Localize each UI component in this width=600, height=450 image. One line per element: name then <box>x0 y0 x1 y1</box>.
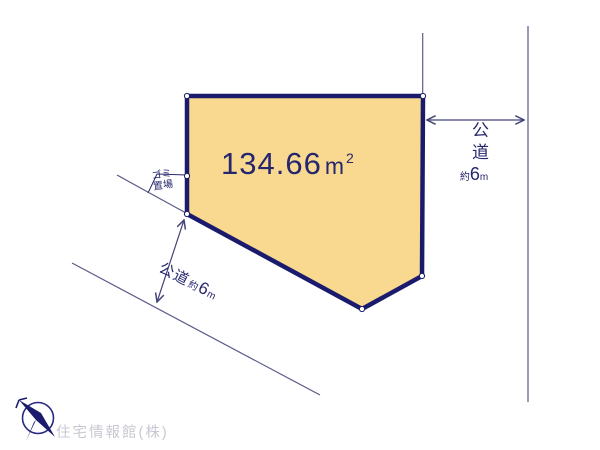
parcel-area-unit-exponent: 2 <box>346 150 355 166</box>
vertex-marker <box>359 306 364 311</box>
vertex-marker <box>184 211 189 216</box>
diagram-line-layer <box>0 0 600 450</box>
vertex-marker <box>419 273 424 278</box>
vertex-marker <box>184 93 189 98</box>
parcel-area-value: 134.66 <box>221 146 322 182</box>
road-right-width-approx: 約 <box>460 172 470 183</box>
road-right-width-value: 6 <box>470 164 480 184</box>
company-watermark: 住宅情報館(株) <box>56 421 169 442</box>
parcel-area-unit: m <box>325 153 345 180</box>
land-parcel-polygon <box>187 96 423 309</box>
road-right-width-label: 約6m <box>448 164 500 185</box>
road-right-name-label: 公道 <box>466 121 491 165</box>
compass-north-icon <box>13 394 61 450</box>
garbage-area-label: ゴミ 置場 <box>151 168 174 193</box>
parcel-area-label: 134.66 m 2 <box>221 146 355 182</box>
plot-diagram-canvas: 134.66 m 2 公道 約6m ゴミ 置場 公道 約 6 m 住宅情報館(株… <box>0 0 600 450</box>
vertex-marker <box>420 93 425 98</box>
road-right-width-unit: m <box>480 172 488 183</box>
vertex-marker <box>184 173 189 178</box>
